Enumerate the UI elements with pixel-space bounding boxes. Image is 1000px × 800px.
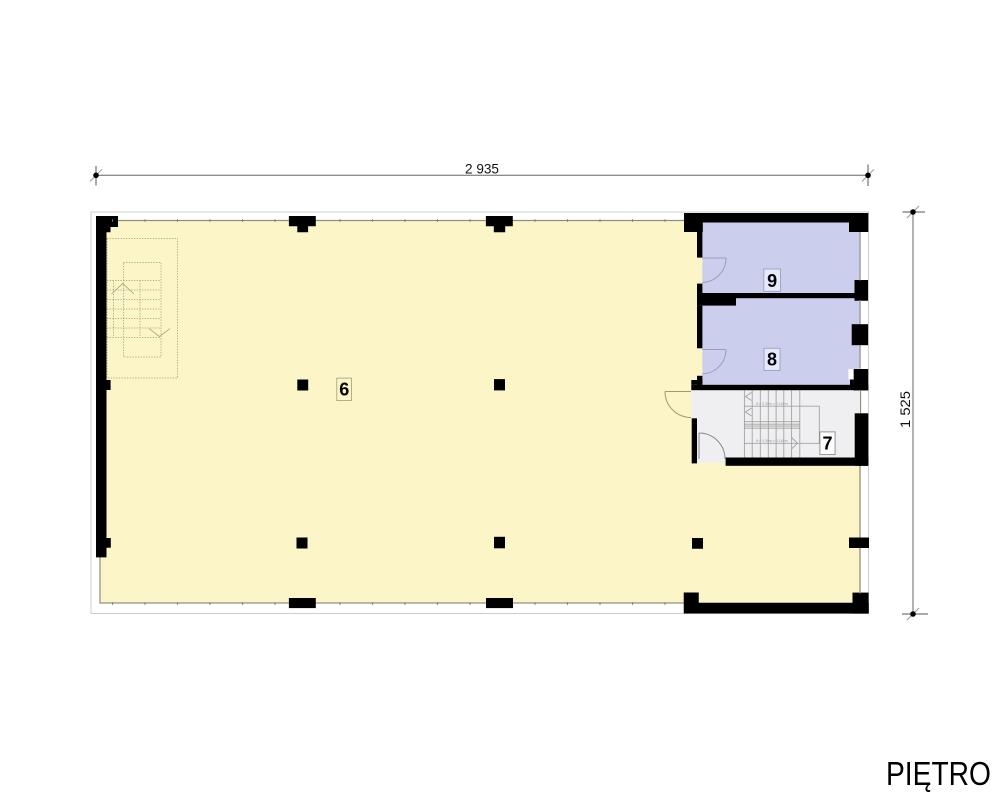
svg-text:6: 6 bbox=[339, 380, 349, 400]
svg-text:7: 7 bbox=[822, 433, 832, 453]
svg-text:1 525: 1 525 bbox=[897, 391, 913, 428]
svg-text:9: 9 bbox=[767, 271, 777, 291]
svg-text:2 935: 2 935 bbox=[465, 161, 499, 177]
svg-text:8: 8 bbox=[767, 350, 777, 370]
svg-text:8 x 0.30m x 0.165m: 8 x 0.30m x 0.165m bbox=[756, 439, 788, 443]
svg-text:PIĘTRO: PIĘTRO bbox=[886, 755, 991, 792]
svg-text:8 x 0.30m x 0.165m: 8 x 0.30m x 0.165m bbox=[756, 402, 788, 406]
